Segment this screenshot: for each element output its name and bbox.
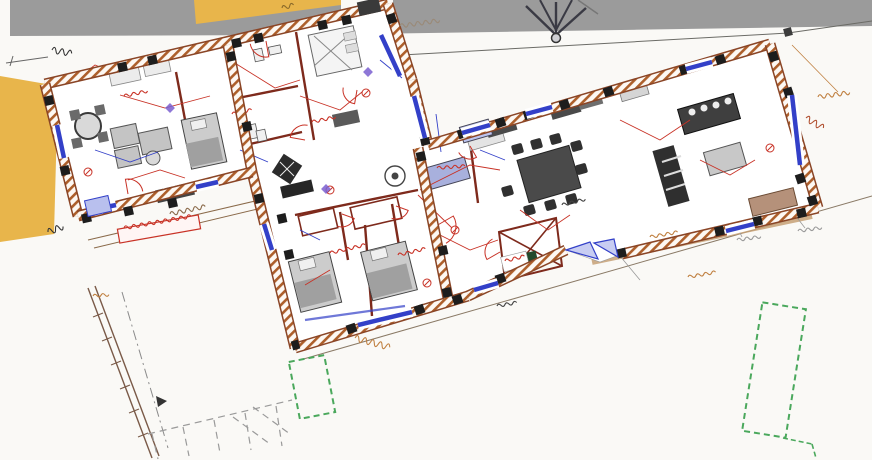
- burner: [713, 102, 720, 109]
- burner: [725, 98, 732, 105]
- floor-plan-canvas: [0, 0, 872, 460]
- chair: [97, 131, 109, 143]
- drawing-layers: [0, 0, 872, 460]
- wc: [256, 129, 267, 142]
- chair: [71, 137, 83, 149]
- chair: [94, 104, 106, 116]
- scanned-floor-plan: [0, 0, 872, 460]
- coffee-table: [146, 151, 160, 165]
- burner: [689, 109, 696, 116]
- chair: [69, 109, 81, 121]
- burner: [701, 105, 708, 112]
